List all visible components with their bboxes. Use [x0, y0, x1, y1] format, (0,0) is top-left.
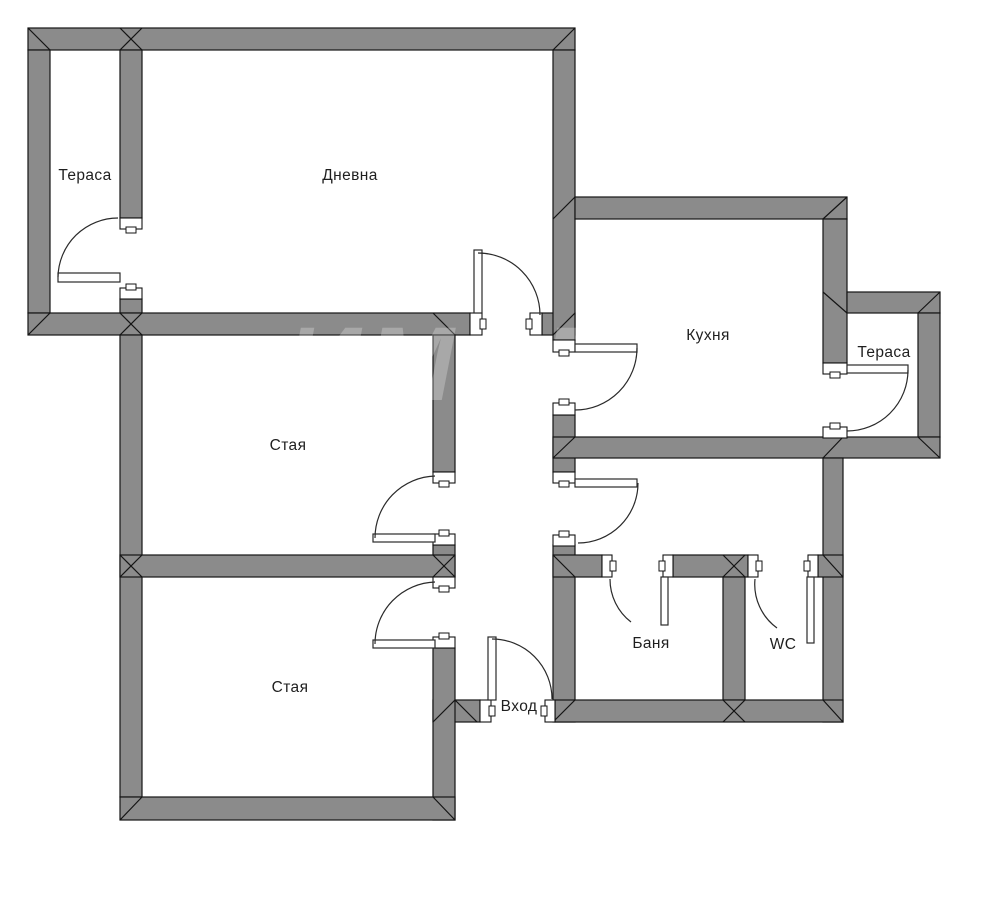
door-swing-arc: [755, 579, 777, 628]
door-leaf: [373, 640, 435, 648]
wall-segment: [673, 555, 748, 577]
wall-segment: [28, 28, 575, 50]
room-label-kitchen: Кухня: [686, 327, 729, 344]
wall-segment: [433, 648, 455, 820]
wall-segment: [120, 50, 142, 218]
watermark-layer: ИМОТИ: [285, 306, 699, 423]
wall-segment: [723, 577, 745, 700]
door-jamb-notch: [439, 481, 449, 487]
door-swing-arc: [58, 218, 118, 277]
door-leaf: [474, 250, 482, 313]
wall-segment: [555, 700, 843, 722]
door-jamb-notch: [439, 586, 449, 592]
door-jamb-notch: [830, 372, 840, 378]
door-jamb-notch: [526, 319, 532, 329]
door-jamb-notch: [659, 561, 665, 571]
door-jamb-notch: [559, 531, 569, 537]
wall-segment: [120, 299, 142, 313]
door-jamb-notch: [804, 561, 810, 571]
room-label-wc: WC: [770, 636, 797, 653]
door-jamb-notch: [126, 227, 136, 233]
wall-segment: [918, 313, 940, 437]
floor-plan-drawing: ИМОТИ ТерасаДневнаКухняТерасаСтаяСтаяБан…: [0, 0, 1000, 919]
door-leaf: [575, 479, 637, 487]
wall-segment: [823, 219, 847, 363]
door-swing-arc: [375, 582, 435, 644]
room-label-bathroom: Баня: [632, 635, 669, 652]
door-swing-arc: [578, 483, 638, 543]
room-label-living-room: Дневна: [322, 167, 378, 184]
wall-segment: [823, 458, 843, 722]
door-jamb-notch: [541, 706, 547, 716]
door-jamb-notch: [830, 423, 840, 429]
door-swing-arc: [847, 370, 908, 431]
door-swing-arc: [492, 639, 552, 699]
door-jamb-notch: [756, 561, 762, 571]
door-leaf: [488, 637, 496, 700]
room-label-terrace-top-left: Тераса: [58, 167, 111, 184]
door-leaf: [847, 365, 908, 373]
room-label-terrace-right: Тераса: [857, 344, 910, 361]
door-jamb-notch: [480, 319, 486, 329]
door-jamb-notch: [439, 633, 449, 639]
watermark-text: ИМОТИ: [285, 306, 699, 423]
door-jamb-notch: [559, 399, 569, 405]
door-jamb-notch: [126, 284, 136, 290]
wall-segment: [120, 555, 455, 577]
door-leaf: [58, 273, 120, 282]
wall-segment: [28, 50, 50, 313]
door-jamb-notch: [559, 350, 569, 356]
floor-plan-page: ИМОТИ ТерасаДневнаКухняТерасаСтаяСтаяБан…: [0, 0, 1000, 919]
door-leaf: [575, 344, 637, 352]
wall-segment: [847, 292, 940, 313]
door-swing-arc: [375, 476, 435, 538]
room-label-entrance: Вход: [501, 698, 538, 715]
room-label-room-middle: Стая: [270, 437, 307, 454]
door-jamb-notch: [610, 561, 616, 571]
door-leaf: [661, 577, 668, 625]
room-label-room-bottom: Стая: [272, 679, 309, 696]
wall-segment: [575, 197, 847, 219]
door-leaf: [373, 534, 435, 542]
door-leaf: [807, 577, 814, 643]
door-jamb-notch: [559, 481, 569, 487]
wall-segment: [553, 50, 575, 340]
door-jamb-notch: [439, 530, 449, 536]
wall-segment: [553, 555, 602, 577]
door-swing-arc: [610, 579, 631, 622]
wall-segment: [120, 797, 455, 820]
door-jamb-notch: [489, 706, 495, 716]
wall-segment: [553, 437, 940, 458]
